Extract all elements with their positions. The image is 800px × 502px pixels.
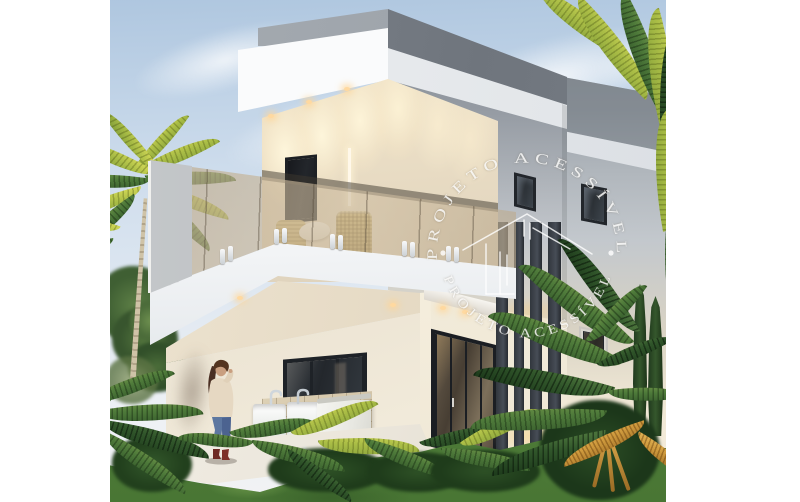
fern-frond — [39, 392, 120, 436]
architectural-render-page: PROJETO ACESSÍVEL PROJETO ACESSÍVEL — [0, 0, 800, 502]
watermark-arc-text-top: PROJETO ACESSÍVEL — [425, 150, 629, 260]
render-scene: PROJETO ACESSÍVEL PROJETO ACESSÍVEL — [0, 0, 800, 502]
palm-frond — [43, 203, 120, 242]
house-outline-icon — [463, 214, 592, 294]
watermark-dot-icon — [608, 250, 613, 255]
watermark-arc-text-bottom: PROJETO ACESSÍVEL — [441, 270, 615, 340]
palm-frond — [42, 238, 116, 266]
watermark-badge: PROJETO ACESSÍVEL PROJETO ACESSÍVEL — [0, 0, 800, 502]
watermark-dot-icon — [440, 250, 445, 255]
